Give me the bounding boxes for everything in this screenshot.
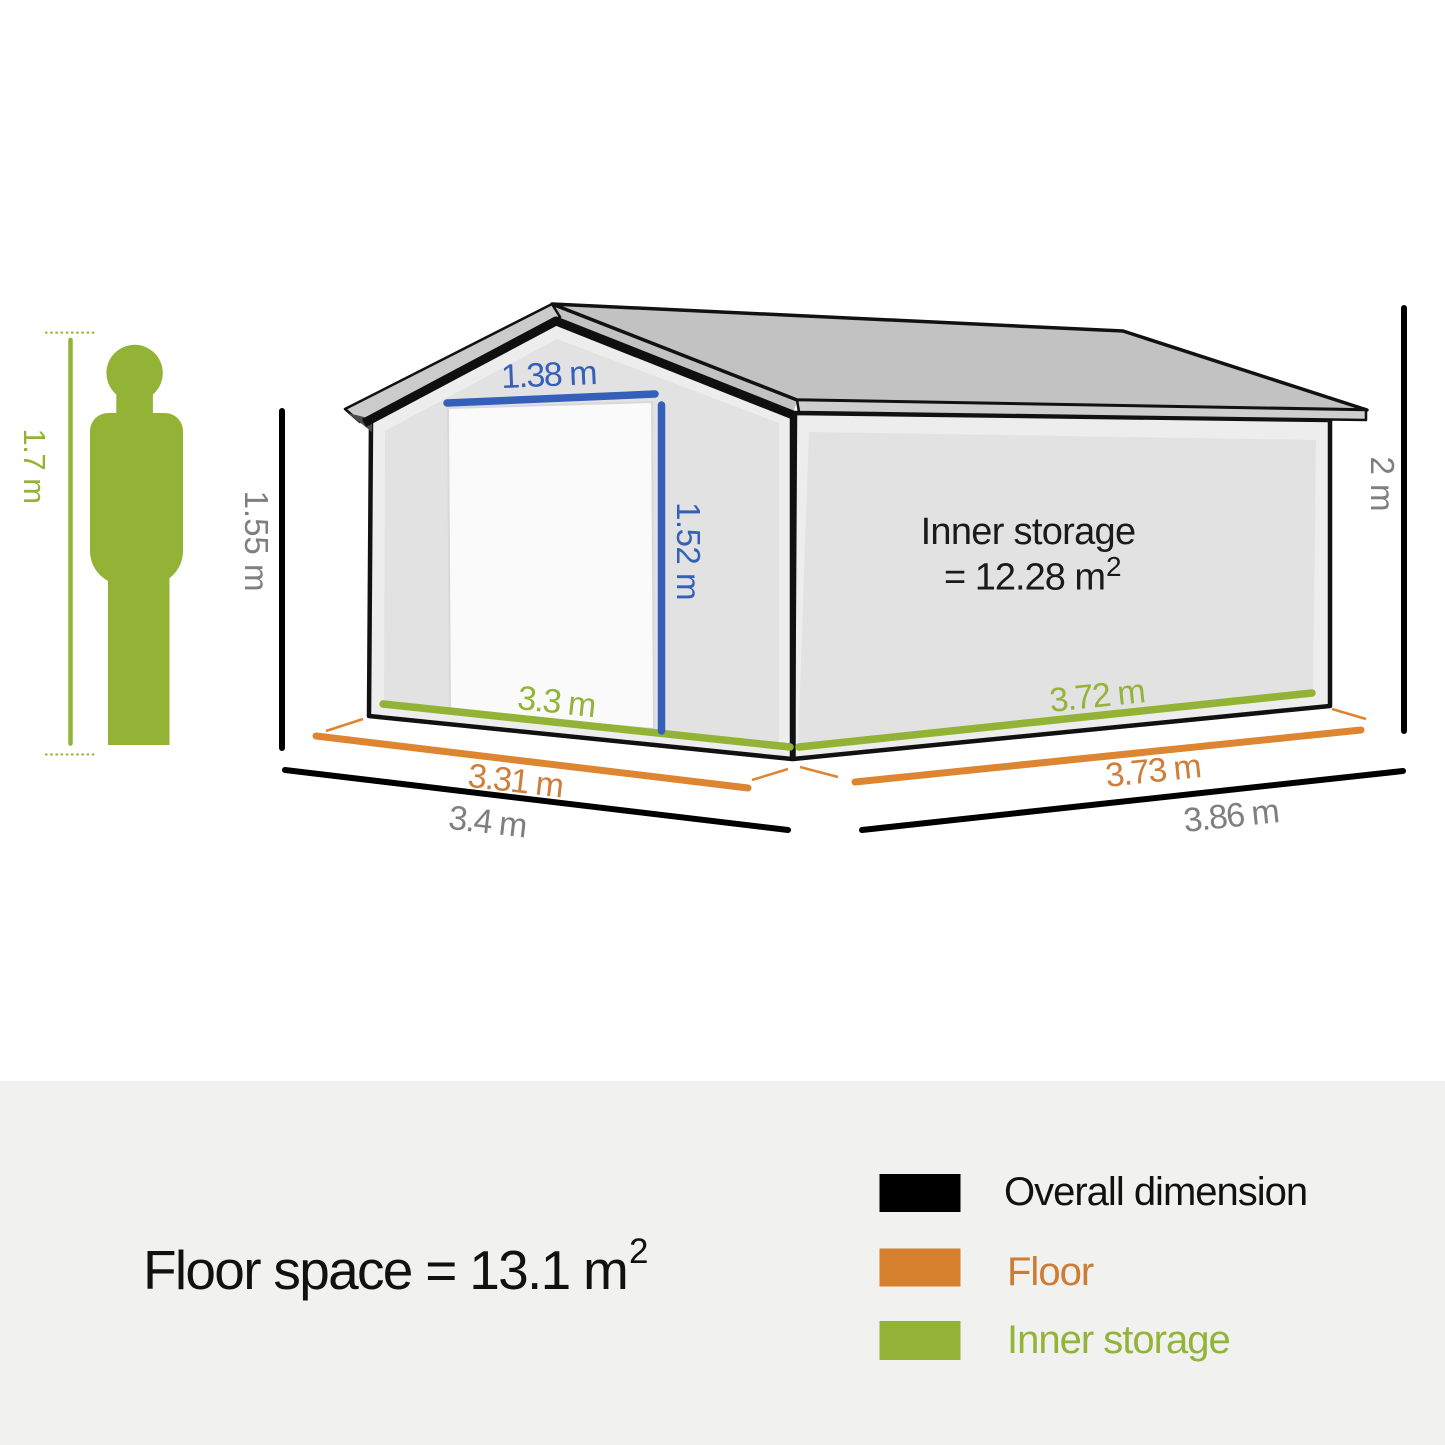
svg-text:3.86 m: 3.86 m	[1182, 792, 1281, 840]
svg-text:1.38 m: 1.38 m	[500, 354, 597, 396]
svg-text:Inner storage: Inner storage	[921, 511, 1136, 553]
svg-text:3.4 m: 3.4 m	[447, 799, 529, 846]
svg-text:Floor: Floor	[1007, 1250, 1094, 1294]
svg-text:2: 2	[1106, 551, 1122, 582]
svg-text:Floor space = 13.1 m: Floor space = 13.1 m	[143, 1239, 627, 1301]
svg-text:Inner storage: Inner storage	[1007, 1318, 1230, 1362]
svg-text:1.52 m: 1.52 m	[670, 502, 707, 600]
svg-text:2: 2	[629, 1232, 648, 1271]
svg-text:2 m: 2 m	[1364, 456, 1401, 511]
svg-text:Overall dimension: Overall dimension	[1004, 1170, 1307, 1214]
svg-text:= 12.28 m: = 12.28 m	[944, 557, 1105, 599]
svg-text:1.55 m: 1.55 m	[238, 491, 275, 592]
svg-text:1.7 m: 1.7 m	[17, 428, 52, 503]
